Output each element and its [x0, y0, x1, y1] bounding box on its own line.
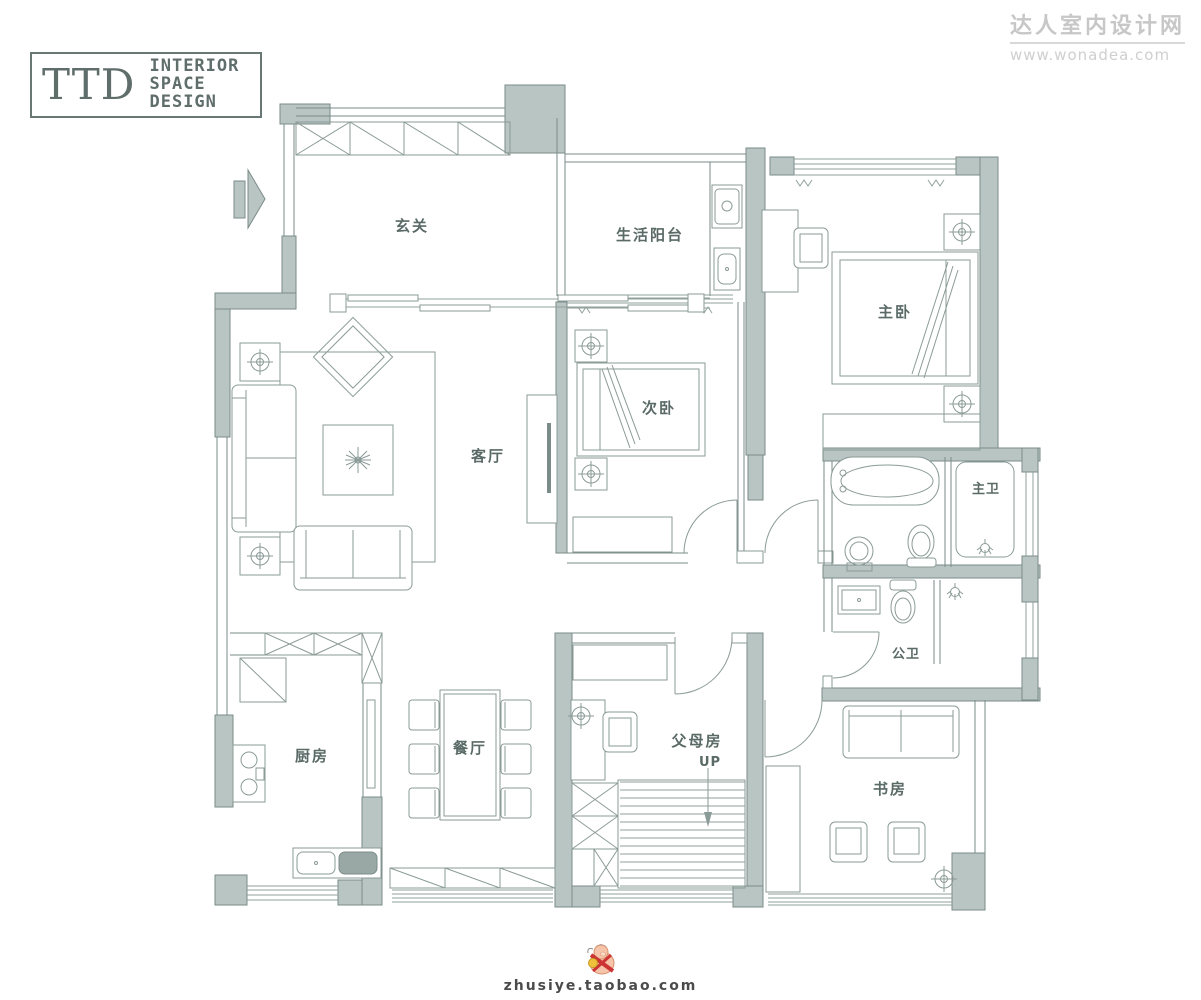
label-second-bedroom: 次卧 — [642, 399, 676, 417]
label-foyer: 玄关 — [395, 217, 429, 235]
label-parents: 父母房 — [670, 732, 722, 750]
study-furniture — [766, 706, 959, 892]
footer-watermark: zhusiye.taobao.com — [0, 941, 1201, 994]
floorplan-drawing: 玄关 生活阳台 主卧 次卧 客厅 主卫 公卫 厨房 餐厅 父母房 UP 书房 — [0, 0, 1201, 1000]
footer-shop-url: zhusiye.taobao.com — [504, 978, 698, 994]
kitchen-fixtures — [233, 658, 381, 878]
master-bedroom-furniture — [762, 210, 980, 450]
label-kitchen: 厨房 — [295, 747, 329, 765]
parents-room-furniture — [568, 645, 667, 780]
accent-chair — [313, 317, 392, 396]
living-room-furniture — [232, 317, 557, 590]
label-living: 客厅 — [470, 447, 505, 465]
entry-arrow — [234, 170, 265, 228]
label-dining: 餐厅 — [453, 739, 487, 757]
second-bedroom-furniture — [573, 330, 705, 552]
label-balcony: 生活阳台 — [616, 226, 684, 244]
master-bath-fixtures — [831, 457, 1014, 571]
label-public-bath: 公卫 — [892, 647, 920, 662]
dining-bay-hatch — [390, 868, 555, 888]
floorplan-page: TTD INTERIOR SPACE DESIGN 达人室内设计网 www.wo… — [0, 0, 1201, 1000]
label-study: 书房 — [873, 780, 907, 798]
railing-hatch-band — [296, 122, 510, 155]
stairs — [618, 768, 745, 888]
public-bath-fixtures — [838, 580, 963, 623]
pig-mascot-icon — [581, 941, 621, 977]
label-master: 主卧 — [878, 303, 912, 321]
balcony-laundry — [712, 185, 742, 290]
stair-shaft-hatch — [572, 783, 618, 886]
label-stairs-up: UP — [699, 755, 721, 770]
label-master-bath: 主卫 — [972, 481, 1000, 497]
